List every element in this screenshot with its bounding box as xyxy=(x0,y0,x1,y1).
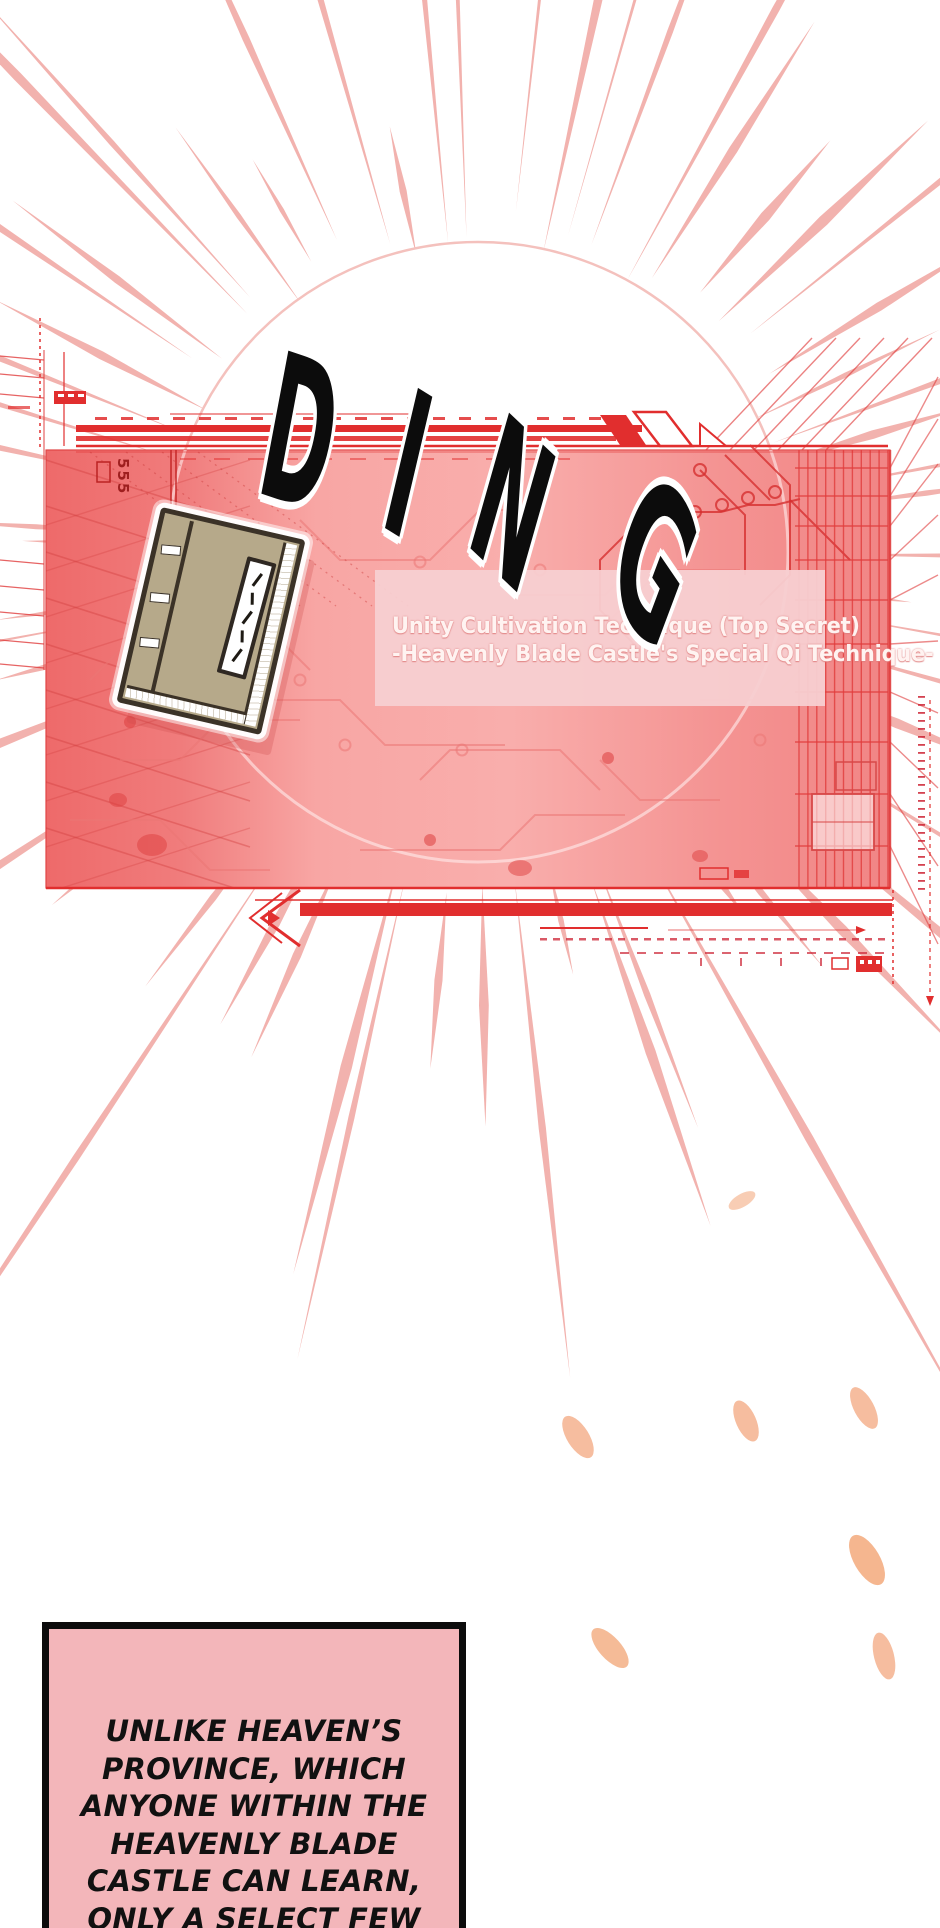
spine-stitch xyxy=(160,544,181,556)
label-glyph xyxy=(241,611,252,625)
label-glyph xyxy=(250,593,253,605)
ding-letter: I xyxy=(371,362,442,570)
label-glyph xyxy=(240,630,243,642)
hud-marker-555: 555 xyxy=(114,458,132,495)
ding-letter: D xyxy=(248,326,349,543)
technique-title-line2: -Heavenly Blade Castle's Special Qi Tech… xyxy=(392,642,934,667)
comic-panel: 555 DING Unity Cultivation Techni xyxy=(0,0,940,1928)
spine-stitch xyxy=(139,637,160,649)
spine-stitch xyxy=(149,592,170,604)
mesh-grid-left xyxy=(0,350,44,670)
label-glyph xyxy=(231,648,242,662)
label-glyph xyxy=(251,573,262,587)
narration-text: UNLIKE HEAVEN’S PROVINCE, WHICH ANYONE W… xyxy=(49,1713,459,1928)
narration-box: UNLIKE HEAVEN’S PROVINCE, WHICH ANYONE W… xyxy=(42,1622,466,1928)
